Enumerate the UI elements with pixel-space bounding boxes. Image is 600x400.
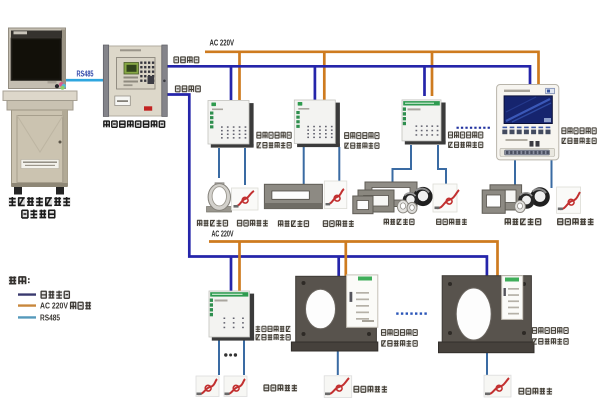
svg-text:AC 220V: AC 220V (210, 38, 235, 48)
svg-text:AC 220V: AC 220V (212, 228, 234, 238)
svg-text:AC 220V: AC 220V (40, 302, 69, 311)
svg-text:RS485: RS485 (40, 314, 61, 323)
svg-text:RS485: RS485 (77, 69, 94, 79)
